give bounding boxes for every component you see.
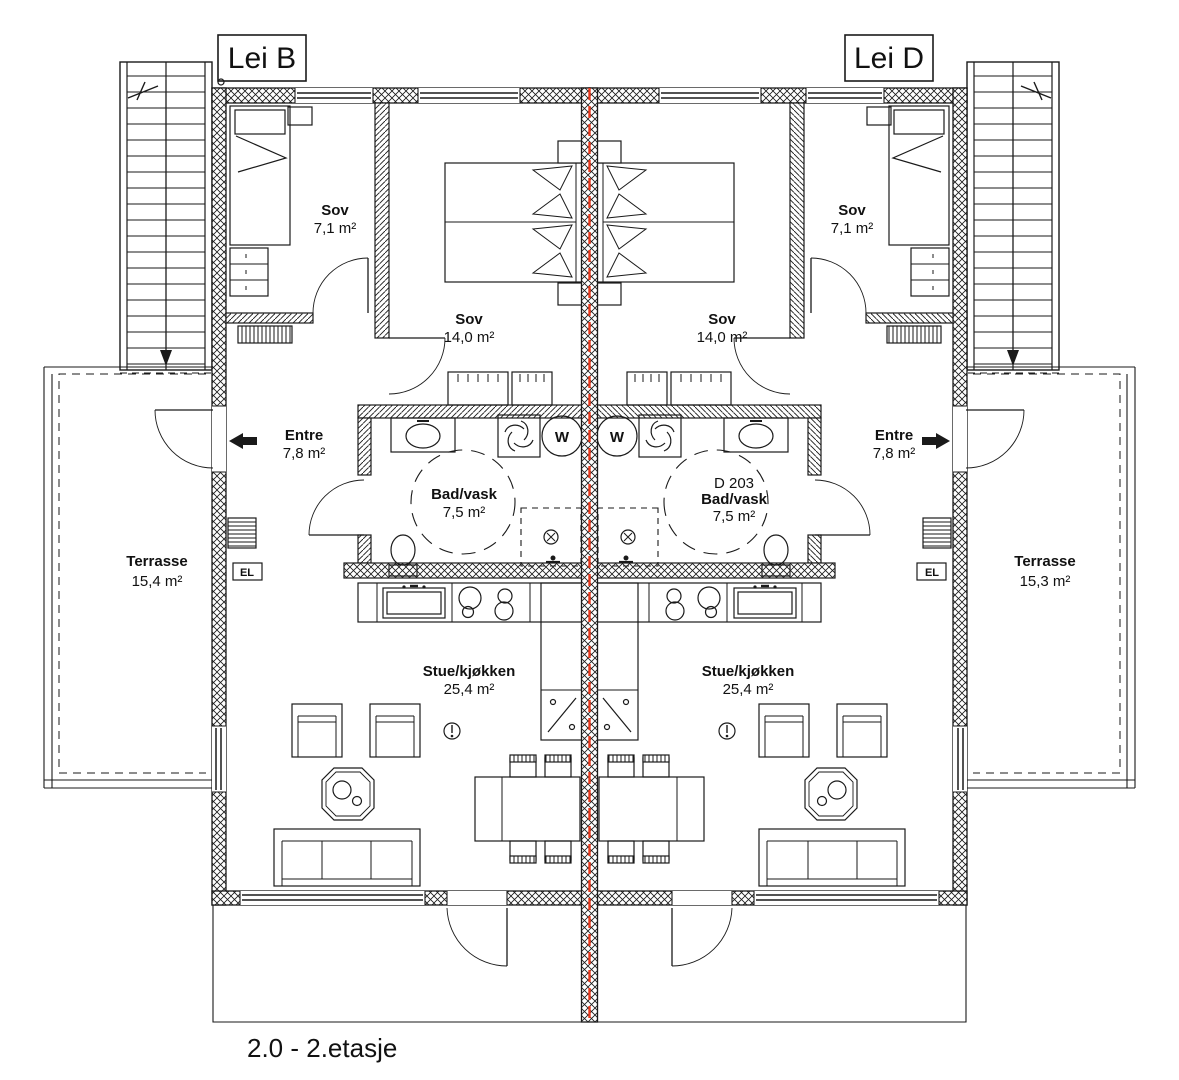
bedroom-large-furniture bbox=[445, 141, 584, 405]
room-label-sov-small-left: Sov bbox=[321, 202, 349, 219]
room-area-entre-left: 7,8 m² bbox=[283, 445, 326, 462]
staircase bbox=[120, 62, 213, 373]
unit-label-boxes bbox=[218, 35, 933, 85]
kitchen-peninsula bbox=[541, 583, 583, 740]
floor-title: 2.0 - 2.etasje bbox=[247, 1033, 397, 1063]
room-label-bad-left: Bad/vask bbox=[431, 486, 498, 503]
room-area-stue-left: 25,4 m² bbox=[444, 681, 495, 698]
el-label-right: EL bbox=[925, 567, 939, 579]
window-top-large-bedroom bbox=[418, 88, 520, 103]
room-label-terrasse-left: Terrasse bbox=[126, 553, 187, 570]
labels: Lei B Lei D Sov 7,1 m² Sov 7,1 m² Sov 14… bbox=[126, 42, 1075, 1063]
duct bbox=[558, 283, 584, 305]
radiator bbox=[238, 326, 292, 343]
room-label-stue-left: Stue/kjøkken bbox=[423, 663, 516, 680]
window-bottom bbox=[240, 891, 425, 905]
entre-items bbox=[228, 433, 262, 580]
terrace-door bbox=[155, 406, 226, 472]
radiator bbox=[228, 518, 256, 548]
el-label-left: EL bbox=[240, 567, 254, 579]
room-area-bad-left: 7,5 m² bbox=[443, 504, 486, 521]
room-area-sov-small-left: 7,1 m² bbox=[314, 220, 357, 237]
duct bbox=[558, 141, 584, 163]
room-label-terrasse-right: Terrasse bbox=[1014, 553, 1075, 570]
light-point-icon bbox=[444, 723, 460, 739]
room-area-bad-right: 7,5 m² bbox=[713, 508, 756, 525]
room-label-bad-right: Bad/vask bbox=[701, 491, 768, 508]
window-top-small-bedroom bbox=[295, 88, 373, 103]
room-label-stue-right: Stue/kjøkken bbox=[702, 663, 795, 680]
room-label-sov-small-right: Sov bbox=[838, 202, 866, 219]
room-area-sov-large-left: 14,0 m² bbox=[444, 329, 495, 346]
dining-chairs bbox=[510, 755, 571, 863]
balcony bbox=[213, 905, 590, 1022]
party-wall bbox=[582, 88, 598, 1022]
dining-table bbox=[475, 777, 580, 841]
armchair bbox=[370, 704, 420, 757]
bedroom-small-furniture bbox=[230, 106, 312, 343]
washer-label-right: W bbox=[610, 429, 625, 446]
cooktop bbox=[459, 587, 513, 620]
sofa bbox=[274, 829, 420, 886]
exterior-walls bbox=[155, 88, 590, 966]
room-area-terrasse-left: 15,4 m² bbox=[132, 573, 183, 590]
window-living-room bbox=[212, 726, 226, 792]
terrace bbox=[44, 367, 213, 788]
room-area-terrasse-right: 15,3 m² bbox=[1020, 573, 1071, 590]
apartment-half-plan bbox=[44, 62, 590, 1022]
room-label-entre-right: Entre bbox=[875, 427, 913, 444]
unit-label-right: Lei D bbox=[854, 42, 924, 75]
washer-label-left: W bbox=[555, 429, 570, 446]
room-area-entre-right: 7,8 m² bbox=[873, 445, 916, 462]
room-area-stue-right: 25,4 m² bbox=[723, 681, 774, 698]
room-area-sov-large-right: 14,0 m² bbox=[697, 329, 748, 346]
unit-label-left: Lei B bbox=[228, 42, 296, 75]
entry-arrow-icon bbox=[229, 433, 257, 449]
floor-plan-drawing: Lei B Lei D Sov 7,1 m² Sov 7,1 m² Sov 14… bbox=[0, 0, 1179, 1080]
dryer-icon bbox=[498, 415, 540, 457]
vanity-sink bbox=[391, 418, 455, 452]
armchair bbox=[292, 704, 342, 757]
shower bbox=[521, 508, 581, 566]
floor-plan-page: Lei B Lei D Sov 7,1 m² Sov 7,1 m² Sov 14… bbox=[0, 0, 1179, 1080]
room-area-sov-small-right: 7,1 m² bbox=[831, 220, 874, 237]
room-label-sov-large-right: Sov bbox=[708, 311, 736, 328]
kitchen-sink bbox=[383, 585, 445, 618]
wardrobes bbox=[448, 372, 552, 405]
coffee-table bbox=[322, 768, 374, 820]
room-label-entre-left: Entre bbox=[285, 427, 323, 444]
living-room-furniture bbox=[274, 704, 580, 886]
balcony-door bbox=[447, 891, 507, 966]
room-label-sov-large-left: Sov bbox=[455, 311, 483, 328]
room-code-bad-right: D 203 bbox=[714, 475, 754, 492]
